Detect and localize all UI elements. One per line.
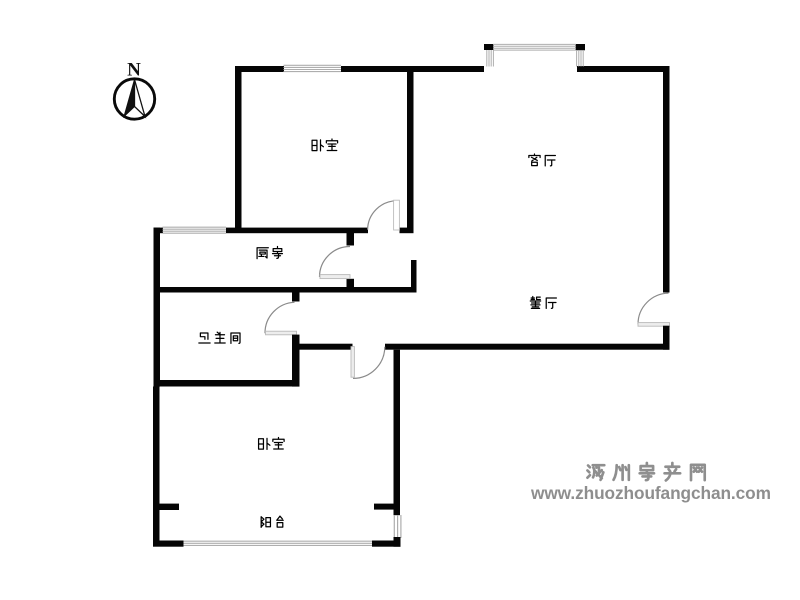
svg-text:N: N (127, 60, 141, 81)
svg-text:www.zhuozhoufangchan.com: www.zhuozhoufangchan.com (530, 483, 771, 503)
